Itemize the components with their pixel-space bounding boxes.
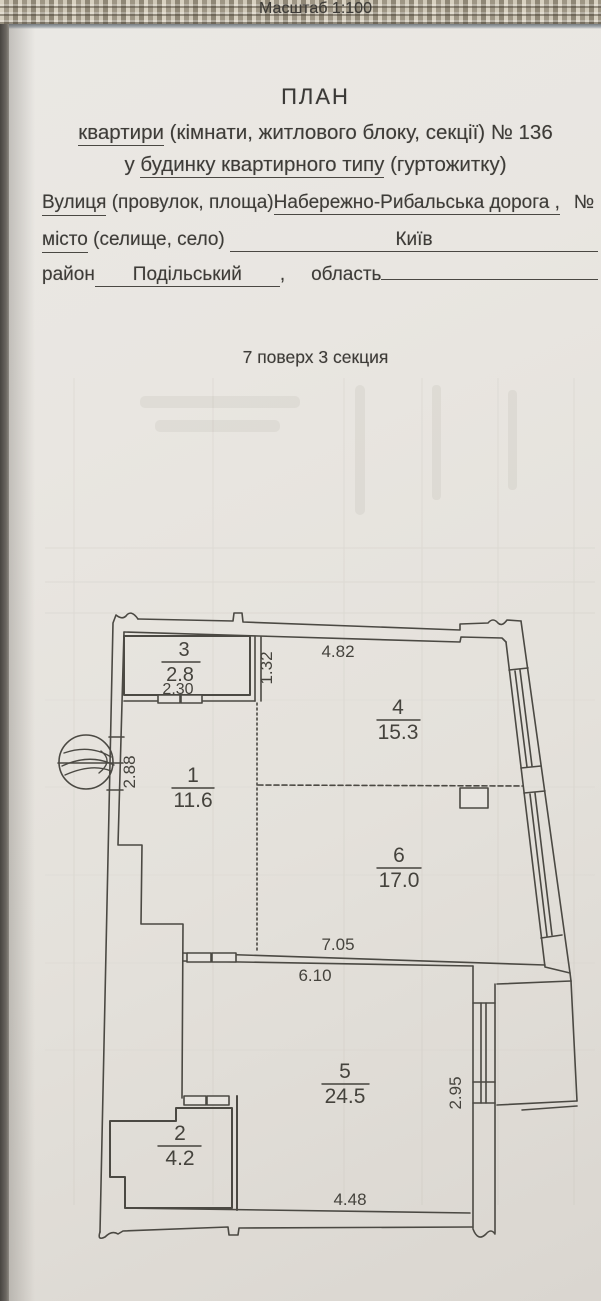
room-labels: 3 2.8 2.30 4 15.3 1 11.6 6 17.0 5 24.5 2… (158, 639, 421, 1170)
room-3-number: 3 (178, 639, 189, 661)
dim-7-05: 7.05 (321, 935, 354, 954)
dim-4-82: 4.82 (321, 642, 354, 661)
left-wall-details (58, 735, 124, 790)
room-5-area: 24.5 (325, 1085, 366, 1108)
room-5-number: 5 (339, 1060, 351, 1083)
pillar-rect (460, 788, 488, 808)
dim-2-88: 2.88 (120, 755, 139, 788)
dim-6-10: 6.10 (298, 966, 331, 985)
balcony-outline (497, 981, 577, 1110)
room-4-number: 4 (392, 696, 404, 719)
dim-2-30: 2.30 (162, 681, 193, 698)
room-2-number: 2 (174, 1122, 186, 1145)
dim-2-95: 2.95 (446, 1076, 465, 1109)
dim-4-48: 4.48 (333, 1190, 366, 1209)
room-6-area: 17.0 (379, 869, 420, 892)
room-6-number: 6 (393, 844, 405, 867)
room5-right-wall (473, 966, 495, 1233)
room5-top-wall (183, 953, 545, 966)
room-1-area: 11.6 (173, 789, 212, 812)
room-4-area: 15.3 (378, 721, 419, 744)
plan-outer-walls (99, 613, 571, 1238)
floor-plan-svg: 3 2.8 2.30 4 15.3 1 11.6 6 17.0 5 24.5 2… (0, 0, 601, 1301)
room-2-area: 4.2 (165, 1147, 194, 1170)
window-right-wall (509, 668, 562, 938)
dim-1-32: 1.32 (257, 651, 276, 684)
photographed-floor-plan-document: ПЛАН квартири (кімнати, житлового блоку,… (0, 0, 601, 1301)
room-1-number: 1 (187, 764, 199, 787)
